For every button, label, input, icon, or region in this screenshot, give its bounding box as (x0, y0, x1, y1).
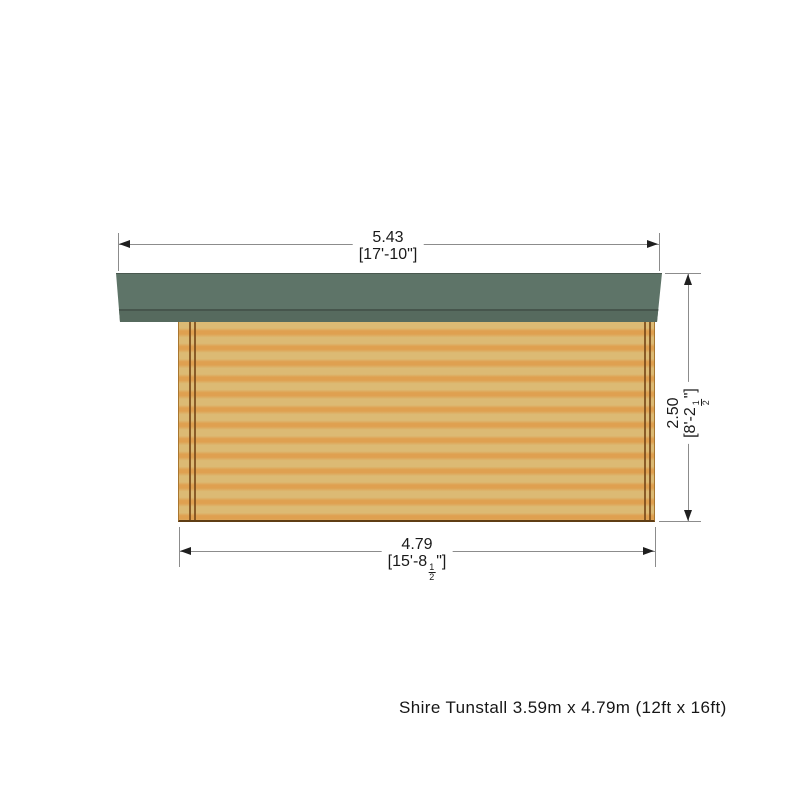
bottom-dim-imperial: [15'-812"] (388, 553, 447, 582)
fraction-half: 12 (428, 563, 435, 582)
top-dim-imperial: [17'-10"] (359, 246, 418, 263)
corner-log-line-right-2 (649, 322, 651, 520)
bottom-dim-arrow-right (643, 547, 654, 555)
bottom-dim-arrow-left (180, 547, 191, 555)
roof-fascia (116, 309, 662, 322)
product-caption: Shire Tunstall 3.59m x 4.79m (12ft x 16f… (399, 698, 727, 718)
top-dim-arrow-left (119, 240, 130, 248)
roof (116, 273, 662, 322)
log-wall (178, 322, 655, 522)
top-dim-metric: 5.43 (359, 229, 418, 246)
elevation-diagram: 5.43 [17'-10"] 2.50 [8'-212"] 4.79 [15'-… (0, 0, 800, 800)
right-dim-metric: 2.50 (665, 388, 682, 438)
right-dim-extension-bottom (659, 521, 701, 522)
right-dim-imperial: [8'-212"] (682, 388, 711, 438)
corner-log-line-left-2 (194, 322, 196, 520)
right-dim-arrow-bottom (684, 510, 692, 521)
bottom-dim-metric: 4.79 (388, 536, 447, 553)
top-dim-label: 5.43 [17'-10"] (353, 229, 424, 263)
fraction-half: 12 (692, 399, 711, 406)
top-dim-extension-right (659, 233, 660, 271)
top-dim-arrow-right (647, 240, 658, 248)
right-dim-arrow-top (684, 274, 692, 285)
corner-log-line-left-1 (189, 322, 191, 520)
top-dim-extension-left (118, 233, 119, 271)
right-dim-extension-top (665, 273, 701, 274)
right-dim-label: 2.50 [8'-212"] (665, 382, 711, 444)
bottom-dim-extension-right (655, 527, 656, 567)
bottom-dim-label: 4.79 [15'-812"] (382, 536, 453, 582)
corner-log-line-right-1 (644, 322, 646, 520)
